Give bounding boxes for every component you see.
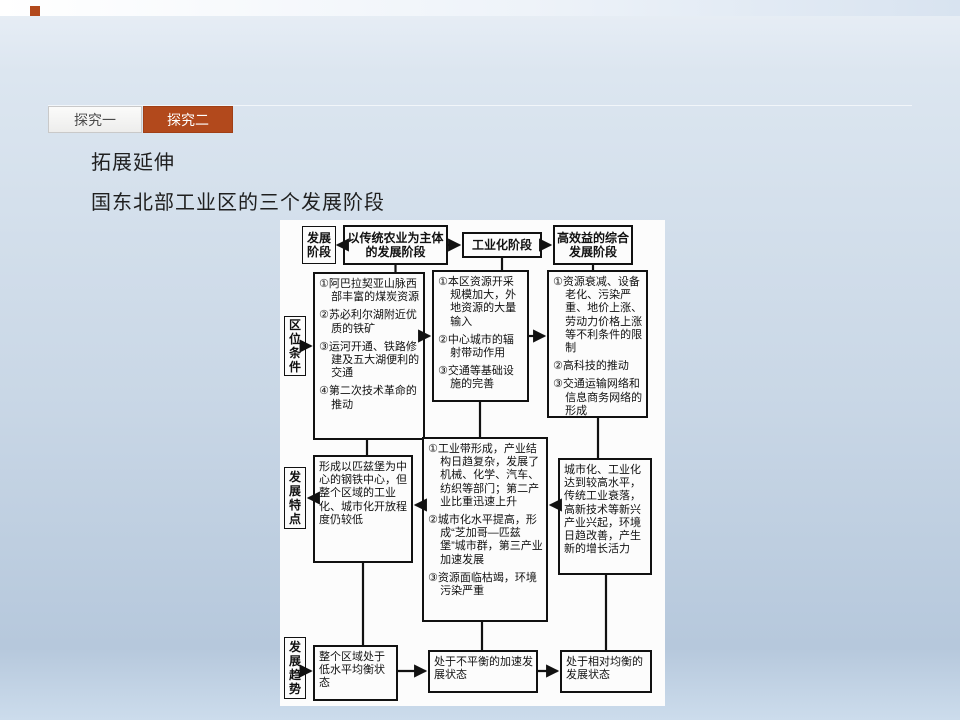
stage-2-box: 工业化阶段 — [462, 232, 542, 258]
flowchart-diagram: 发展阶段 以传统农业为主体的发展阶段 工业化阶段 高效益的综合发展阶段 区位条件… — [280, 220, 665, 706]
features-stage3-box: 城市化、工业化达到较高水平，传统工业衰落，高新技术等新兴产业兴起，环境日趋改善，… — [558, 458, 652, 575]
section-title: 拓展延伸 — [91, 146, 175, 175]
location-stage3-box: ①资源衰减、设备老化、污染严重、地价上涨、劳动力价格上涨等不利条件的限制 ②高科… — [547, 270, 648, 418]
list-item: ②高科技的推动 — [553, 360, 643, 373]
row-label-features: 发展特点 — [284, 467, 306, 529]
list-item: ②城市化水平提高，形成“芝加哥—匹兹堡”城市群，第三产业加速发展 — [428, 514, 543, 567]
top-decor-band — [0, 0, 960, 16]
stage-1-box: 以传统农业为主体的发展阶段 — [343, 225, 448, 265]
features-stage1-box: 形成以匹兹堡为中心的钢铁中心，但整个区域的工业化、城市化开放程度仍较低 — [313, 455, 413, 563]
list-item: ②中心城市的辐射带动作用 — [438, 334, 524, 360]
list-item: ③交通运输网络和信息商务网络的形成 — [553, 378, 643, 418]
trend-stage1-box: 整个区域处于低水平均衡状态 — [313, 645, 398, 701]
accent-square — [30, 6, 40, 16]
list-item: ②苏必利尔湖附近优质的铁矿 — [319, 309, 420, 335]
list-item: ①工业带形成，产业结构日趋复杂，发展了机械、化学、汽车、纺织等部门；第二产业比重… — [428, 443, 543, 509]
trend-stage2-box: 处于不平衡的加速发展状态 — [428, 650, 538, 693]
list-item: ③交通等基础设施的完善 — [438, 365, 524, 391]
list-item: ①本区资源开采规模加大，外地资源的大量输入 — [438, 276, 524, 329]
list-item: ①阿巴拉契亚山脉西部丰富的煤炭资源 — [319, 278, 420, 304]
tab-explore-2[interactable]: 探究二 — [143, 106, 233, 133]
page-title: 国东北部工业区的三个发展阶段 — [91, 186, 385, 215]
location-stage1-box: ①阿巴拉契亚山脉西部丰富的煤炭资源 ②苏必利尔湖附近优质的铁矿 ③运河开通、铁路… — [313, 272, 425, 440]
list-item: ③资源面临枯竭，环境污染严重 — [428, 572, 543, 598]
trend-stage3-box: 处于相对均衡的发展状态 — [560, 650, 652, 693]
list-item: ③运河开通、铁路修建及五大湖便利的交通 — [319, 341, 420, 381]
stage-3-box: 高效益的综合发展阶段 — [553, 225, 633, 265]
row-label-trend: 发展趋势 — [284, 637, 306, 699]
slide: 探究一 探究二 拓展延伸 国东北部工业区的三个发展阶段 发展阶段 以传统农业为主… — [0, 0, 960, 720]
list-item: ①资源衰减、设备老化、污染严重、地价上涨、劳动力价格上涨等不利条件的限制 — [553, 276, 643, 355]
list-item: ④第二次技术革命的推动 — [319, 385, 420, 411]
row-label-location: 区位条件 — [284, 316, 306, 376]
tab-explore-1[interactable]: 探究一 — [48, 106, 142, 133]
location-stage2-box: ①本区资源开采规模加大，外地资源的大量输入 ②中心城市的辐射带动作用 ③交通等基… — [432, 270, 529, 402]
features-stage2-box: ①工业带形成，产业结构日趋复杂，发展了机械、化学、汽车、纺织等部门；第二产业比重… — [422, 437, 548, 622]
stage-axis-label: 发展阶段 — [302, 226, 336, 264]
tab-explore-2-label: 探究二 — [167, 110, 209, 130]
tab-explore-1-label: 探究一 — [74, 110, 116, 130]
